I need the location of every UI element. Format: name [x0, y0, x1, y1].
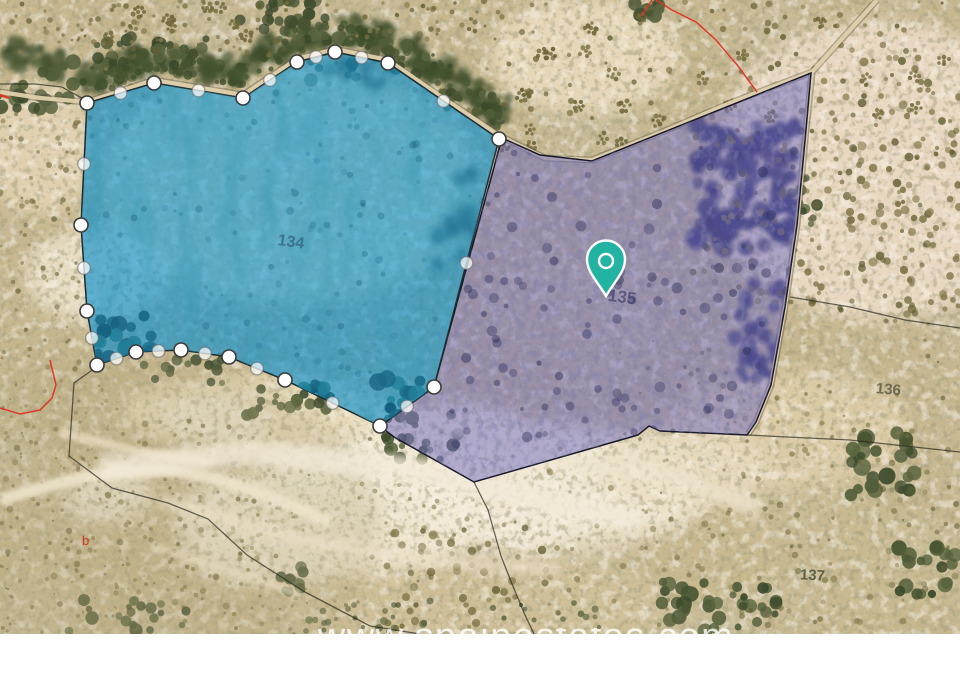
svg-text:137: 137 — [799, 566, 825, 584]
svg-text:b: b — [82, 533, 89, 548]
svg-text:136: 136 — [875, 380, 901, 399]
